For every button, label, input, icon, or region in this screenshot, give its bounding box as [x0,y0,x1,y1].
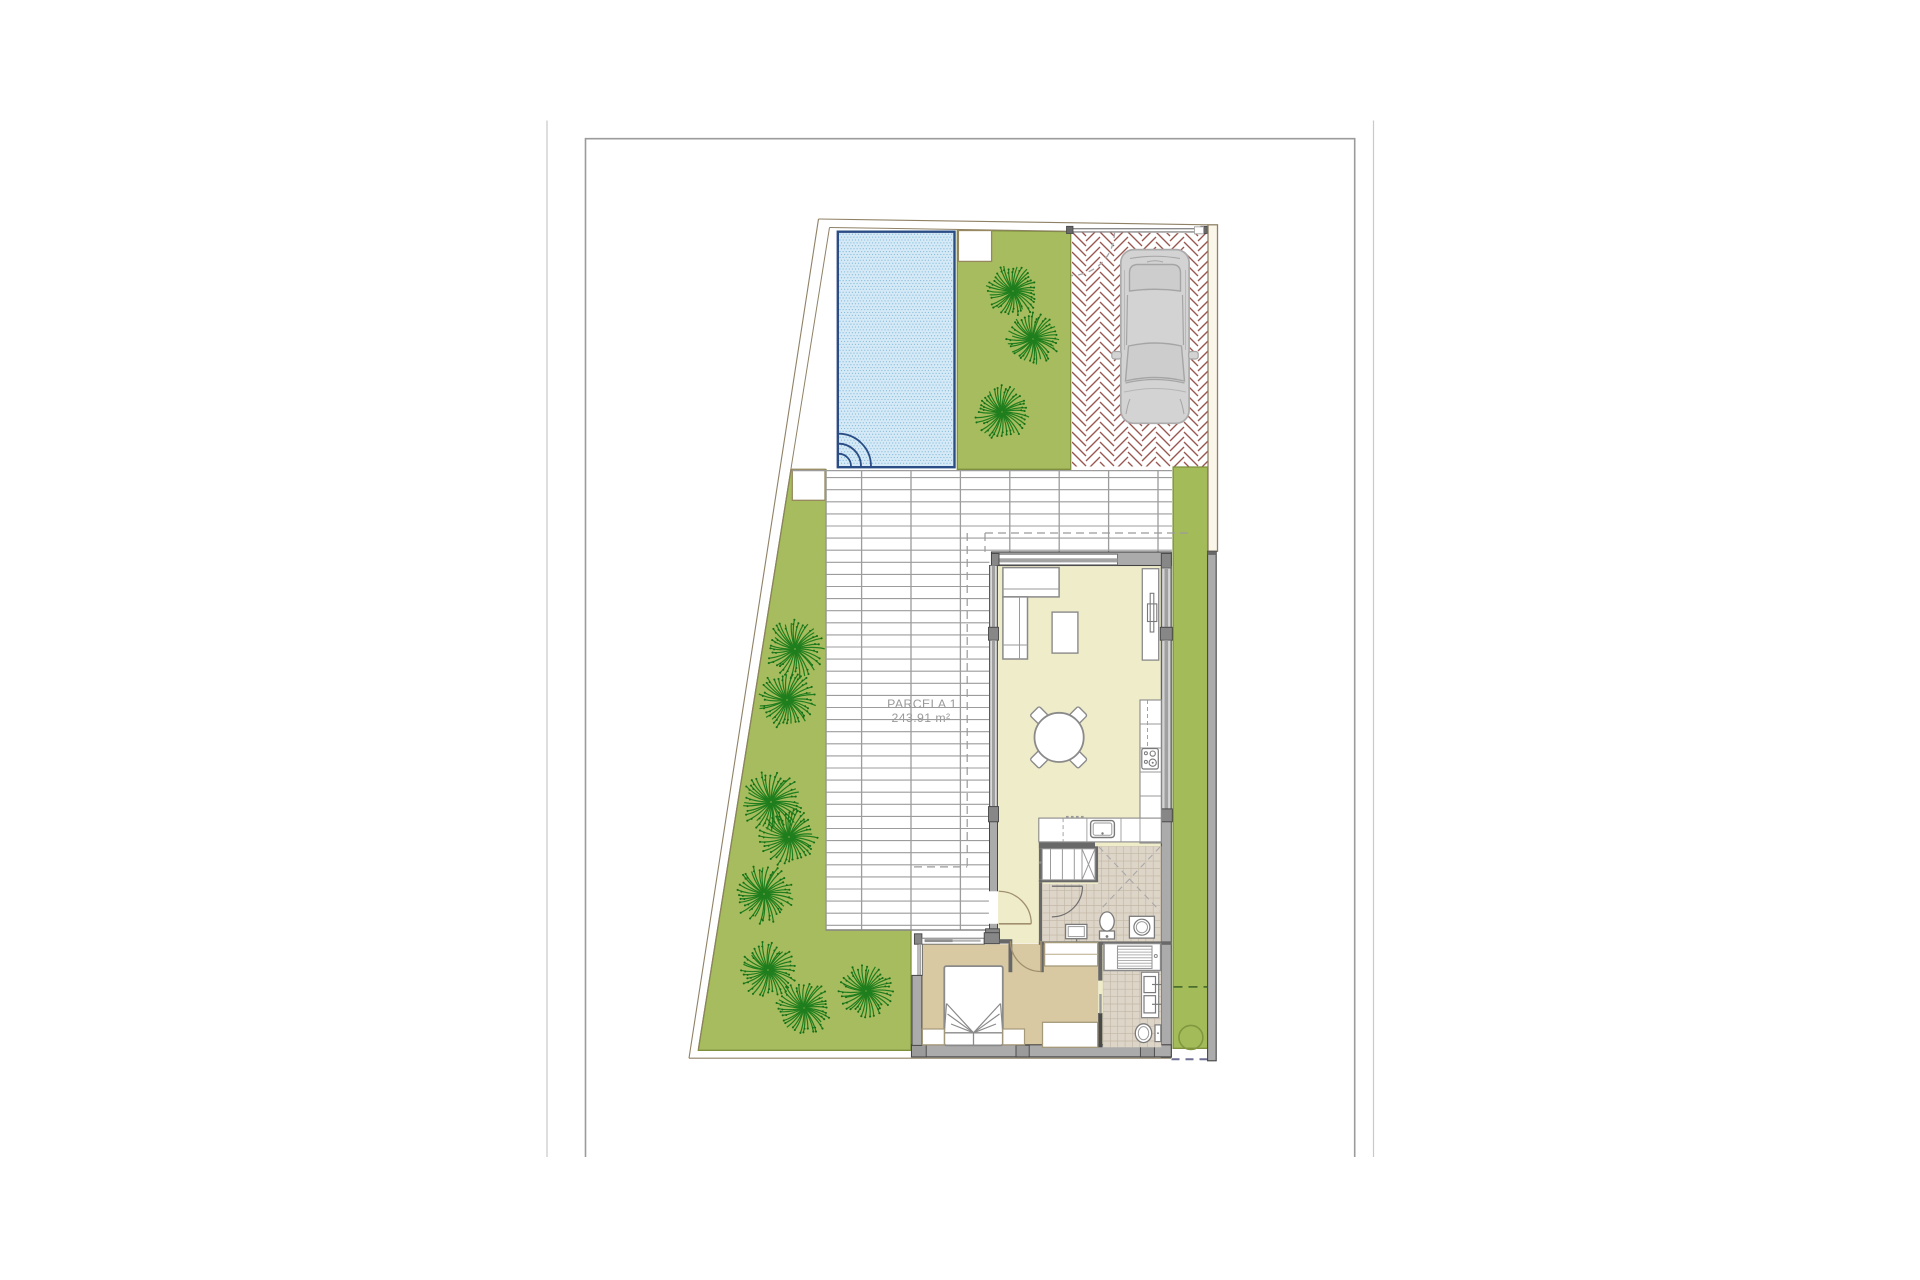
svg-text:243.91 m²: 243.91 m² [892,711,951,725]
svg-text:PARCELA 1: PARCELA 1 [887,697,957,711]
